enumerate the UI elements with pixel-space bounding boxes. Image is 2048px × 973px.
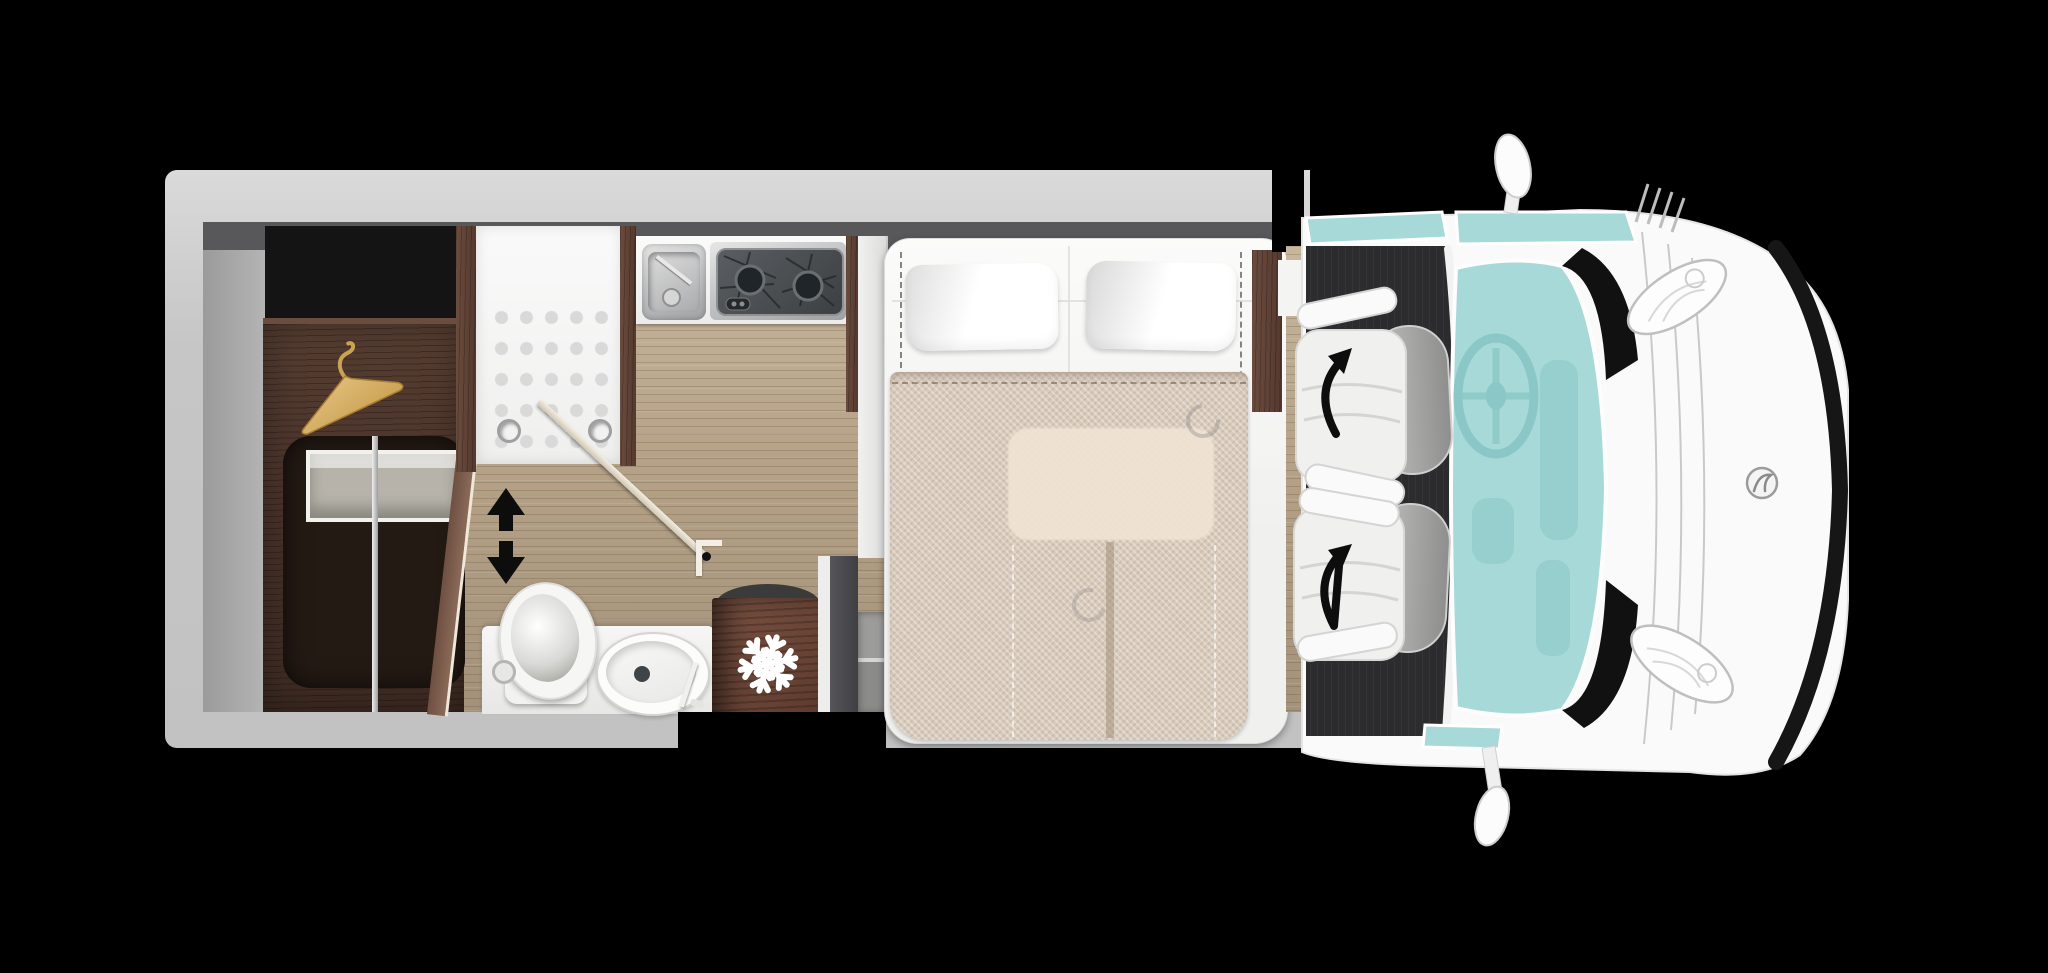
- cab-side-window-top: [1306, 212, 1447, 244]
- quilt-stitch-line: [892, 382, 1246, 384]
- hanging-rail: [372, 436, 378, 712]
- floorplan-canvas: [0, 0, 2048, 973]
- toilet-flush-knob: [492, 660, 516, 684]
- entry-side-panel: [830, 556, 858, 738]
- shower-drain: [497, 419, 521, 443]
- cab: [1240, 60, 1900, 920]
- mattress-stitch-left: [900, 252, 902, 368]
- burner: [794, 272, 822, 300]
- shower-drain: [588, 419, 612, 443]
- swivel-seat-passenger: [1294, 486, 1452, 663]
- underbed-guide-line: [1214, 545, 1216, 737]
- wardrobe-recess: [265, 226, 460, 322]
- mattress-center-seam: [1068, 246, 1070, 372]
- steering-wheel: [1458, 338, 1534, 454]
- hob-grates: [716, 248, 840, 312]
- pillow: [905, 263, 1058, 352]
- table-under-bed: [1008, 428, 1214, 540]
- kitchen-right-trim: [846, 236, 858, 412]
- cab-side-window-bottom: [1423, 725, 1502, 749]
- entry-door-opening: [678, 712, 886, 752]
- shower-right-trim: [620, 226, 636, 466]
- side-mirror-top-icon: [1490, 131, 1537, 214]
- left-wall-lip: [203, 250, 265, 712]
- table-leg-under-bed: [1106, 542, 1114, 738]
- pillow: [1085, 260, 1237, 351]
- brand-badge-icon: [1747, 468, 1777, 498]
- kitchen-faucet-base: [662, 288, 681, 307]
- hob-control-knob: [726, 298, 750, 310]
- sliding-door-arrow-icon: [478, 488, 534, 584]
- shower-left-trim: [456, 226, 476, 472]
- door-hinge: [702, 552, 711, 561]
- door-bracket-horizontal: [696, 540, 722, 546]
- fridge-side-edge: [818, 556, 830, 738]
- windshield: [1451, 260, 1606, 715]
- underbed-guide-line: [1012, 545, 1014, 737]
- tv-bracket: [306, 450, 460, 522]
- washbasin-drain: [634, 666, 650, 682]
- cab-side-window-top: [1456, 212, 1636, 244]
- burner: [736, 266, 764, 294]
